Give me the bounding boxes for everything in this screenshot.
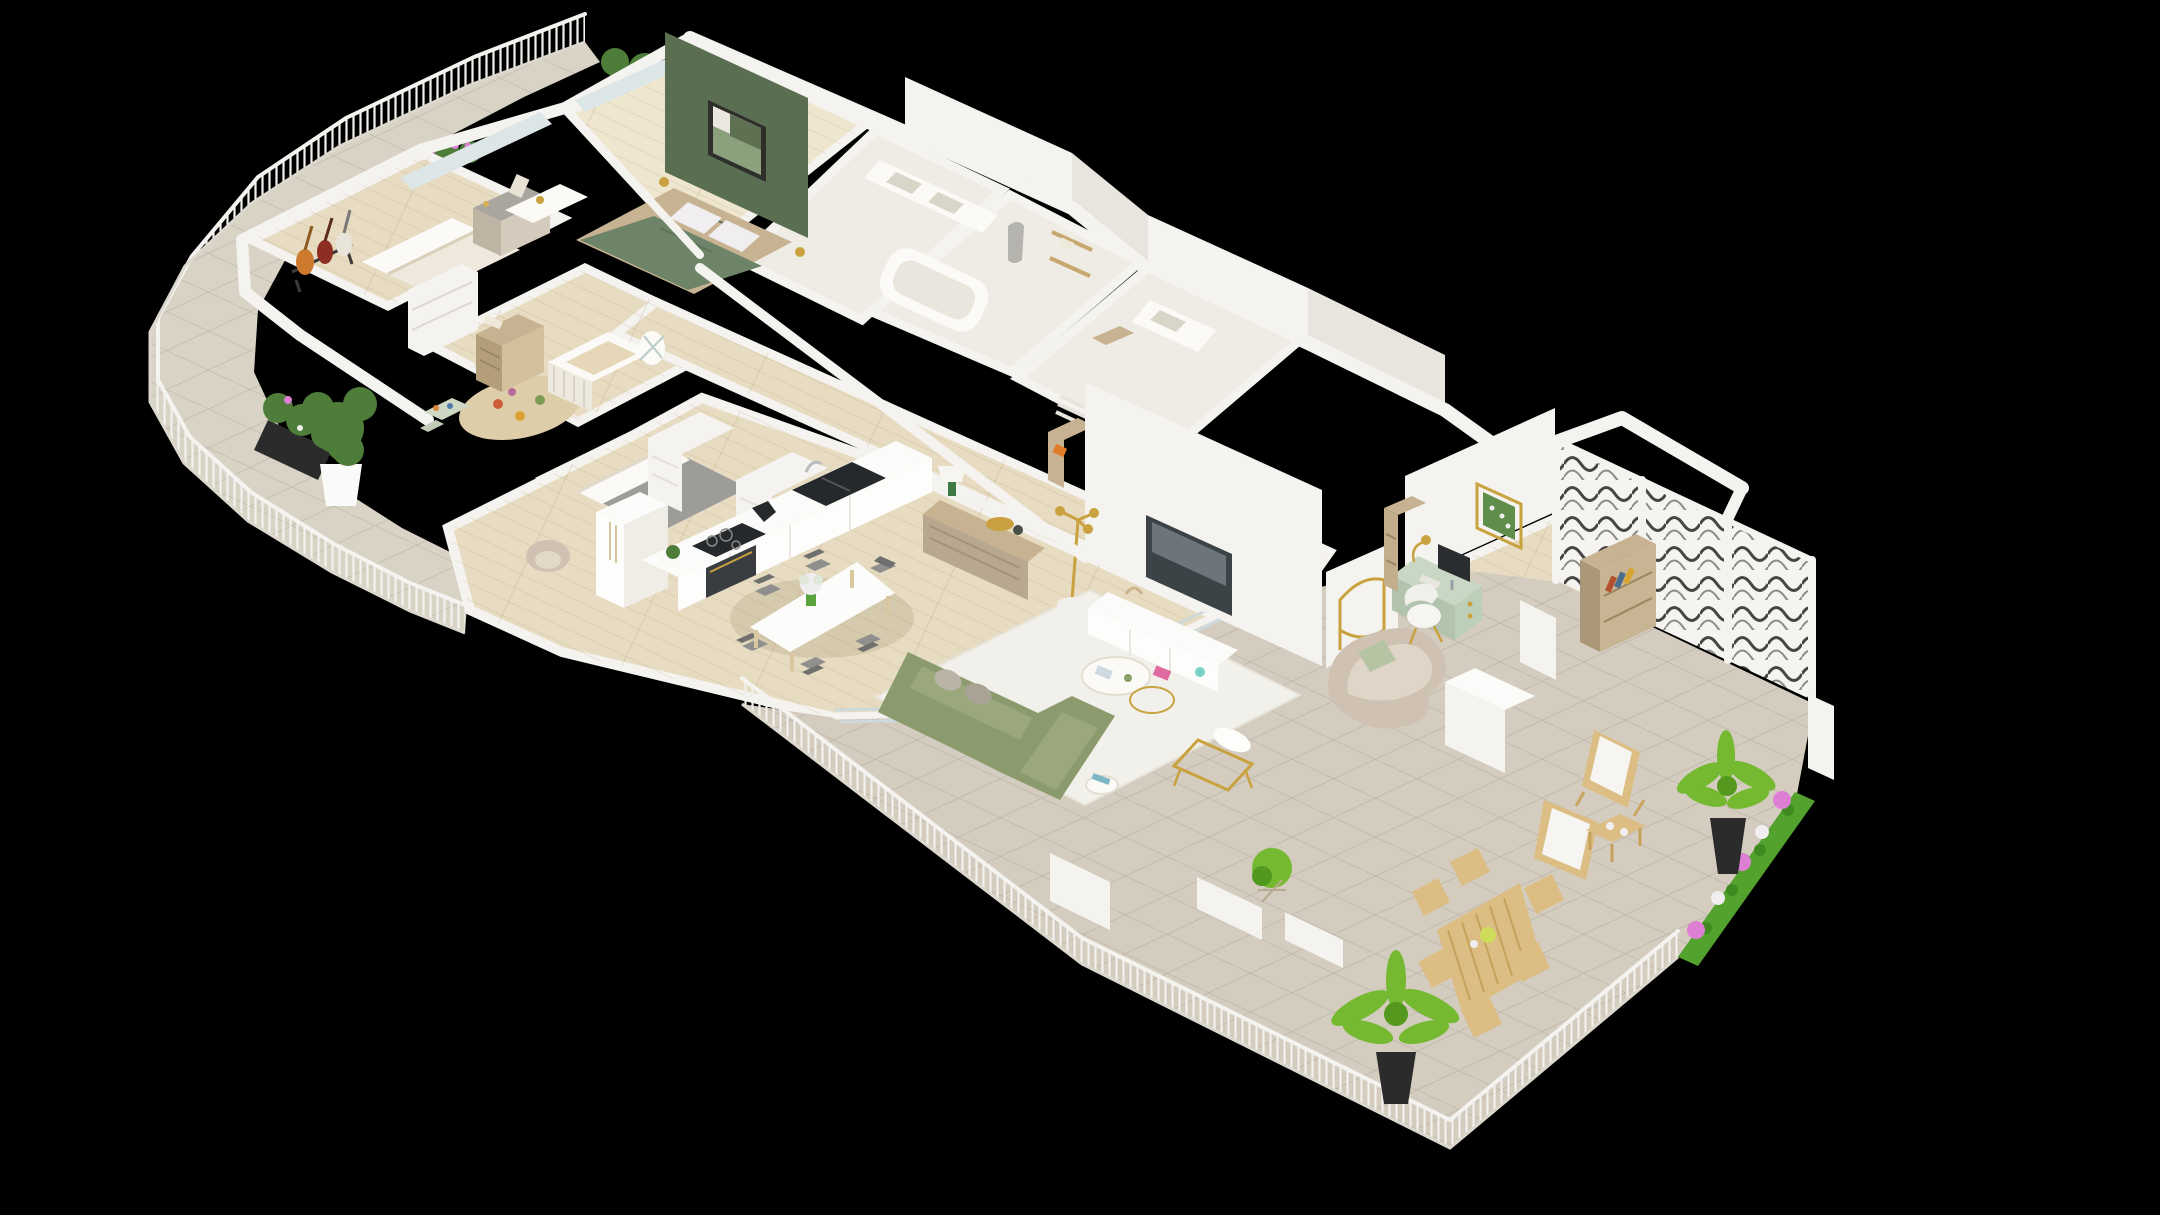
baby-bouncer — [639, 331, 665, 365]
toy — [515, 411, 525, 421]
fridge — [596, 492, 668, 608]
toy — [535, 395, 545, 405]
dark-vase — [1013, 525, 1023, 535]
electric-guitar-2 — [336, 232, 352, 256]
drink-pitcher — [1480, 927, 1496, 943]
herb-pot — [666, 545, 680, 568]
guest-armchair — [526, 540, 570, 572]
flower-cluster — [1711, 891, 1725, 905]
gold-tray — [986, 517, 1014, 531]
lattice-end-pillar — [1808, 694, 1834, 780]
toy — [493, 399, 503, 409]
floorplan-canvas: Curved balcony gardenwhite slatted raili… — [0, 0, 2160, 1215]
electric-guitar — [317, 240, 333, 264]
cup — [1620, 828, 1628, 836]
small-vase — [1124, 674, 1132, 682]
toy — [508, 388, 516, 396]
flower-cluster — [1755, 825, 1769, 839]
lamp-base — [1057, 597, 1087, 611]
flower-cluster — [1773, 791, 1791, 809]
hanging-bathrobe — [1008, 222, 1024, 263]
flower-cluster — [1687, 921, 1705, 939]
fig-pot-2 — [320, 464, 362, 506]
bedside-lamp — [659, 177, 669, 187]
cup — [1606, 822, 1614, 830]
floorplan-3d-render: Curved balcony gardenwhite slatted raili… — [0, 0, 2160, 1215]
glass — [1470, 940, 1478, 948]
acoustic-guitar — [296, 249, 314, 275]
book-on-dresser — [483, 201, 489, 207]
bedside-lamp — [795, 247, 805, 257]
vanity-lamp — [536, 196, 544, 204]
teal-vase — [1195, 667, 1205, 677]
